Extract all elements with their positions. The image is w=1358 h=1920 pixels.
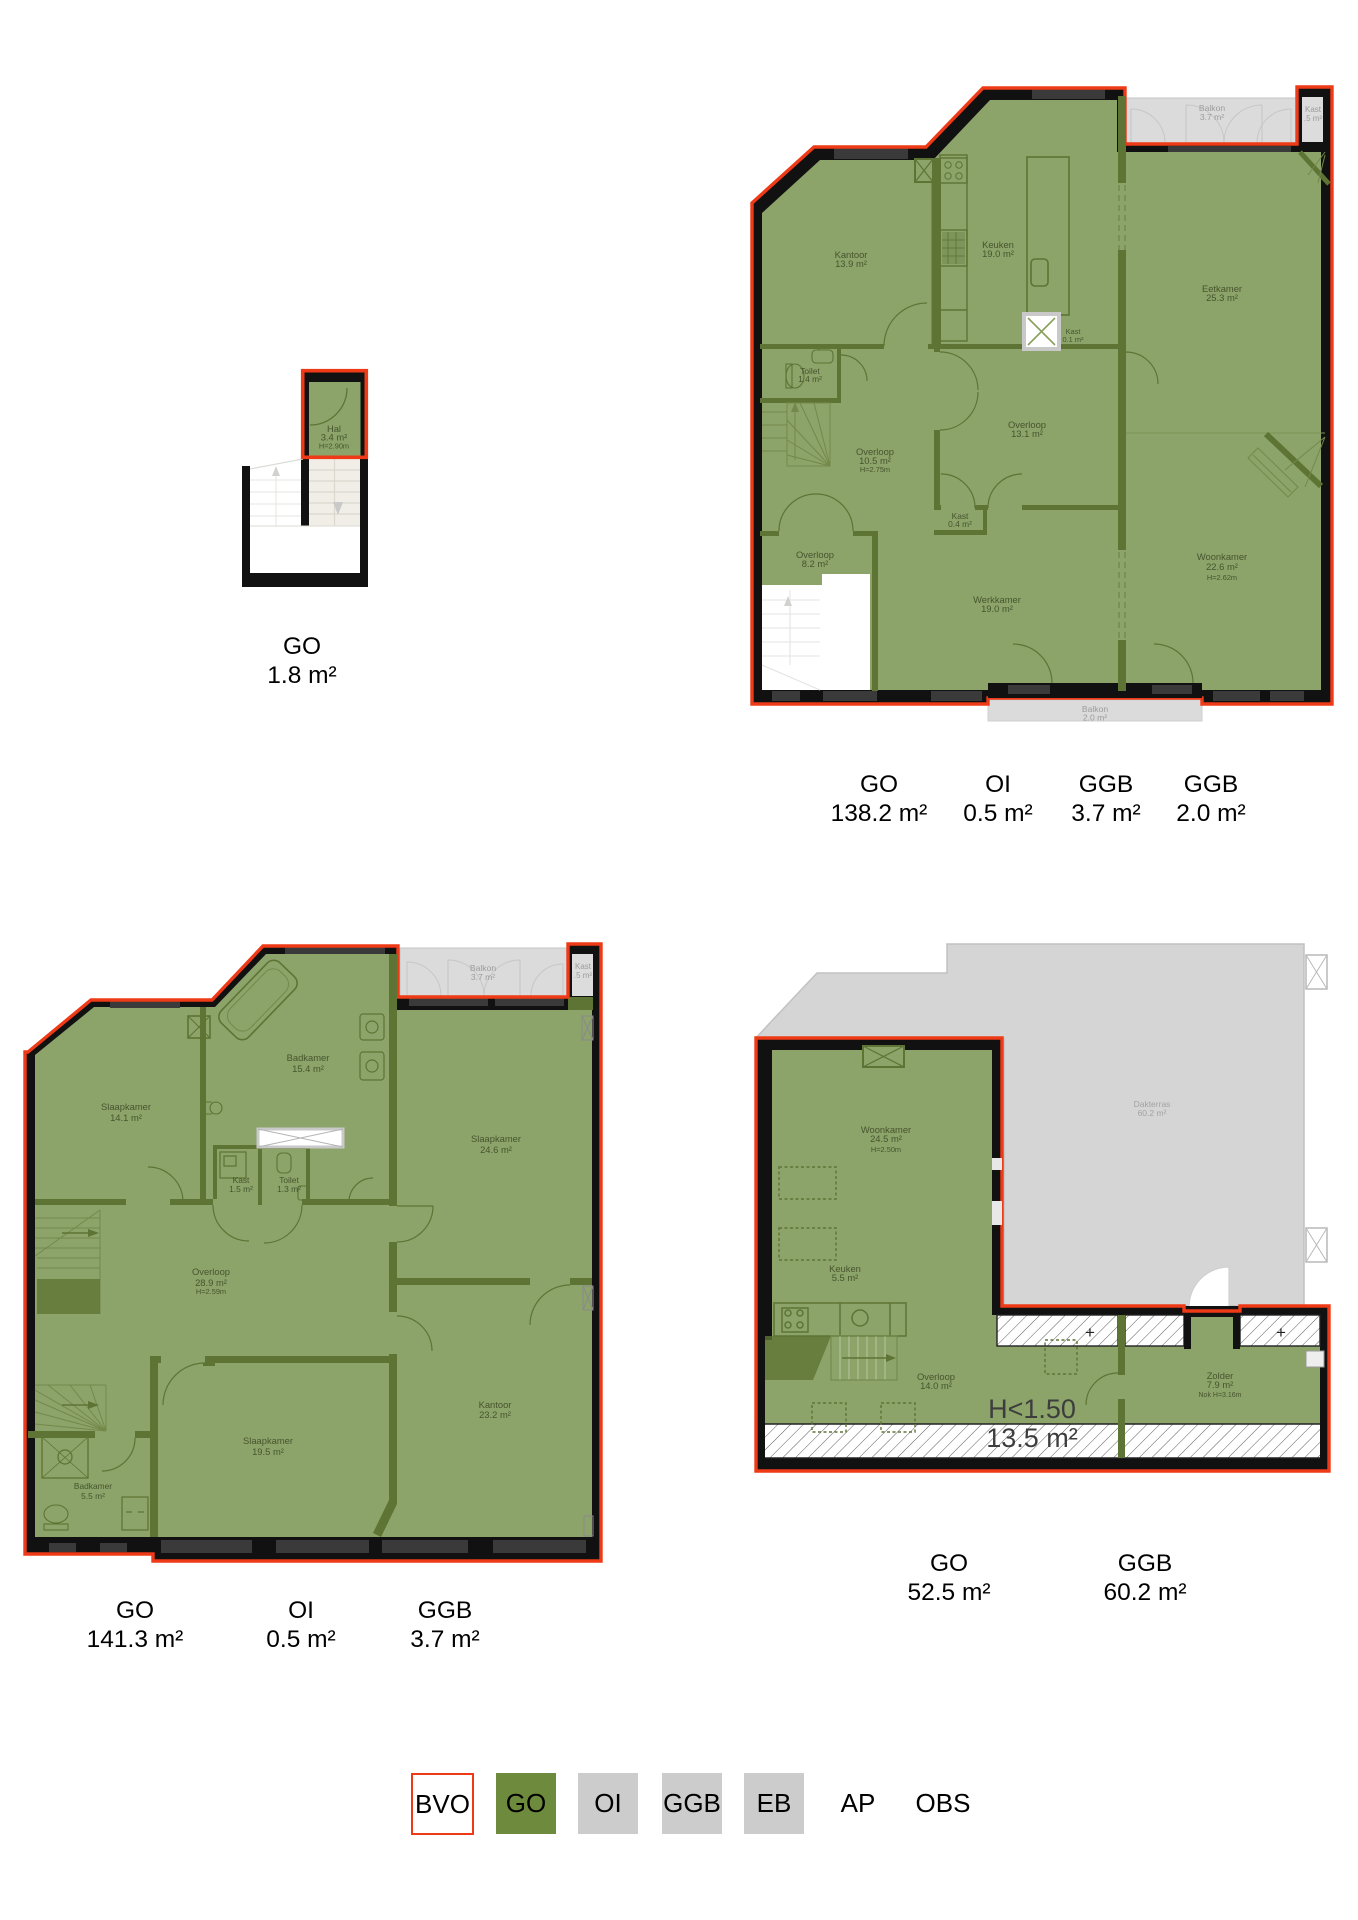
svg-text:H=2.90m: H=2.90m <box>319 442 349 451</box>
svg-text:24.5 m²: 24.5 m² <box>870 1133 902 1144</box>
svg-text:23.2 m²: 23.2 m² <box>479 1409 511 1420</box>
svg-text:5.5 m²: 5.5 m² <box>832 1272 859 1283</box>
svg-text:25.3 m²: 25.3 m² <box>1206 292 1238 303</box>
svg-text:+: + <box>1276 1323 1286 1342</box>
svg-text:13.9 m²: 13.9 m² <box>835 258 867 269</box>
svg-text:24.6 m²: 24.6 m² <box>480 1144 512 1155</box>
svg-text:19.0 m²: 19.0 m² <box>982 248 1014 259</box>
svg-text:1.3 m²: 1.3 m² <box>277 1184 301 1194</box>
svg-text:22.6 m²: 22.6 m² <box>1206 561 1238 572</box>
svg-text:19.0 m²: 19.0 m² <box>981 603 1013 614</box>
svg-text:13.5 m²: 13.5 m² <box>986 1423 1078 1453</box>
svg-text:1.4 m²: 1.4 m² <box>798 374 822 384</box>
svg-text:+: + <box>1085 1323 1095 1342</box>
svg-text:Slaapkamer: Slaapkamer <box>101 1101 151 1112</box>
svg-text:H=2.50m: H=2.50m <box>871 1145 901 1154</box>
svg-text:14.0 m²: 14.0 m² <box>920 1380 952 1391</box>
svg-text:1.5 m²: 1.5 m² <box>229 1184 253 1194</box>
svg-text:H<1.50: H<1.50 <box>988 1394 1076 1424</box>
svg-text:Kast: Kast <box>1305 105 1322 114</box>
svg-text:Overloop: Overloop <box>192 1266 230 1277</box>
svg-text:H=2.62m: H=2.62m <box>1207 573 1237 582</box>
svg-text:Badkamer: Badkamer <box>287 1052 330 1063</box>
svg-text:0.1 m²: 0.1 m² <box>1063 335 1084 344</box>
svg-text:Badkamer: Badkamer <box>74 1481 112 1491</box>
svg-text:13.1 m²: 13.1 m² <box>1011 428 1043 439</box>
svg-text:H=2.59m: H=2.59m <box>196 1287 226 1296</box>
svg-text:2.0 m²: 2.0 m² <box>1083 713 1107 723</box>
svg-text:15.4 m²: 15.4 m² <box>292 1063 324 1074</box>
svg-text:Slaapkamer: Slaapkamer <box>471 1133 521 1144</box>
svg-text:.5 m²: .5 m² <box>574 971 593 980</box>
svg-text:Nok H=3.16m: Nok H=3.16m <box>1199 1392 1242 1399</box>
svg-text:Slaapkamer: Slaapkamer <box>243 1435 293 1446</box>
svg-text:3.7 m²: 3.7 m² <box>1200 112 1224 122</box>
svg-text:Kast: Kast <box>575 962 592 971</box>
svg-text:3.7 m²: 3.7 m² <box>471 972 495 982</box>
svg-text:7.9 m²: 7.9 m² <box>1207 1379 1234 1390</box>
svg-text:5.5 m²: 5.5 m² <box>81 1491 105 1501</box>
svg-text:19.5 m²: 19.5 m² <box>252 1446 284 1457</box>
svg-text:8.2 m²: 8.2 m² <box>802 558 829 569</box>
svg-text:14.1 m²: 14.1 m² <box>110 1112 142 1123</box>
svg-text:H=2.75m: H=2.75m <box>860 465 890 474</box>
svg-text:60.2 m²: 60.2 m² <box>1138 1108 1167 1118</box>
svg-text:.5 m²: .5 m² <box>1304 114 1323 123</box>
svg-text:0.4 m²: 0.4 m² <box>948 519 972 529</box>
